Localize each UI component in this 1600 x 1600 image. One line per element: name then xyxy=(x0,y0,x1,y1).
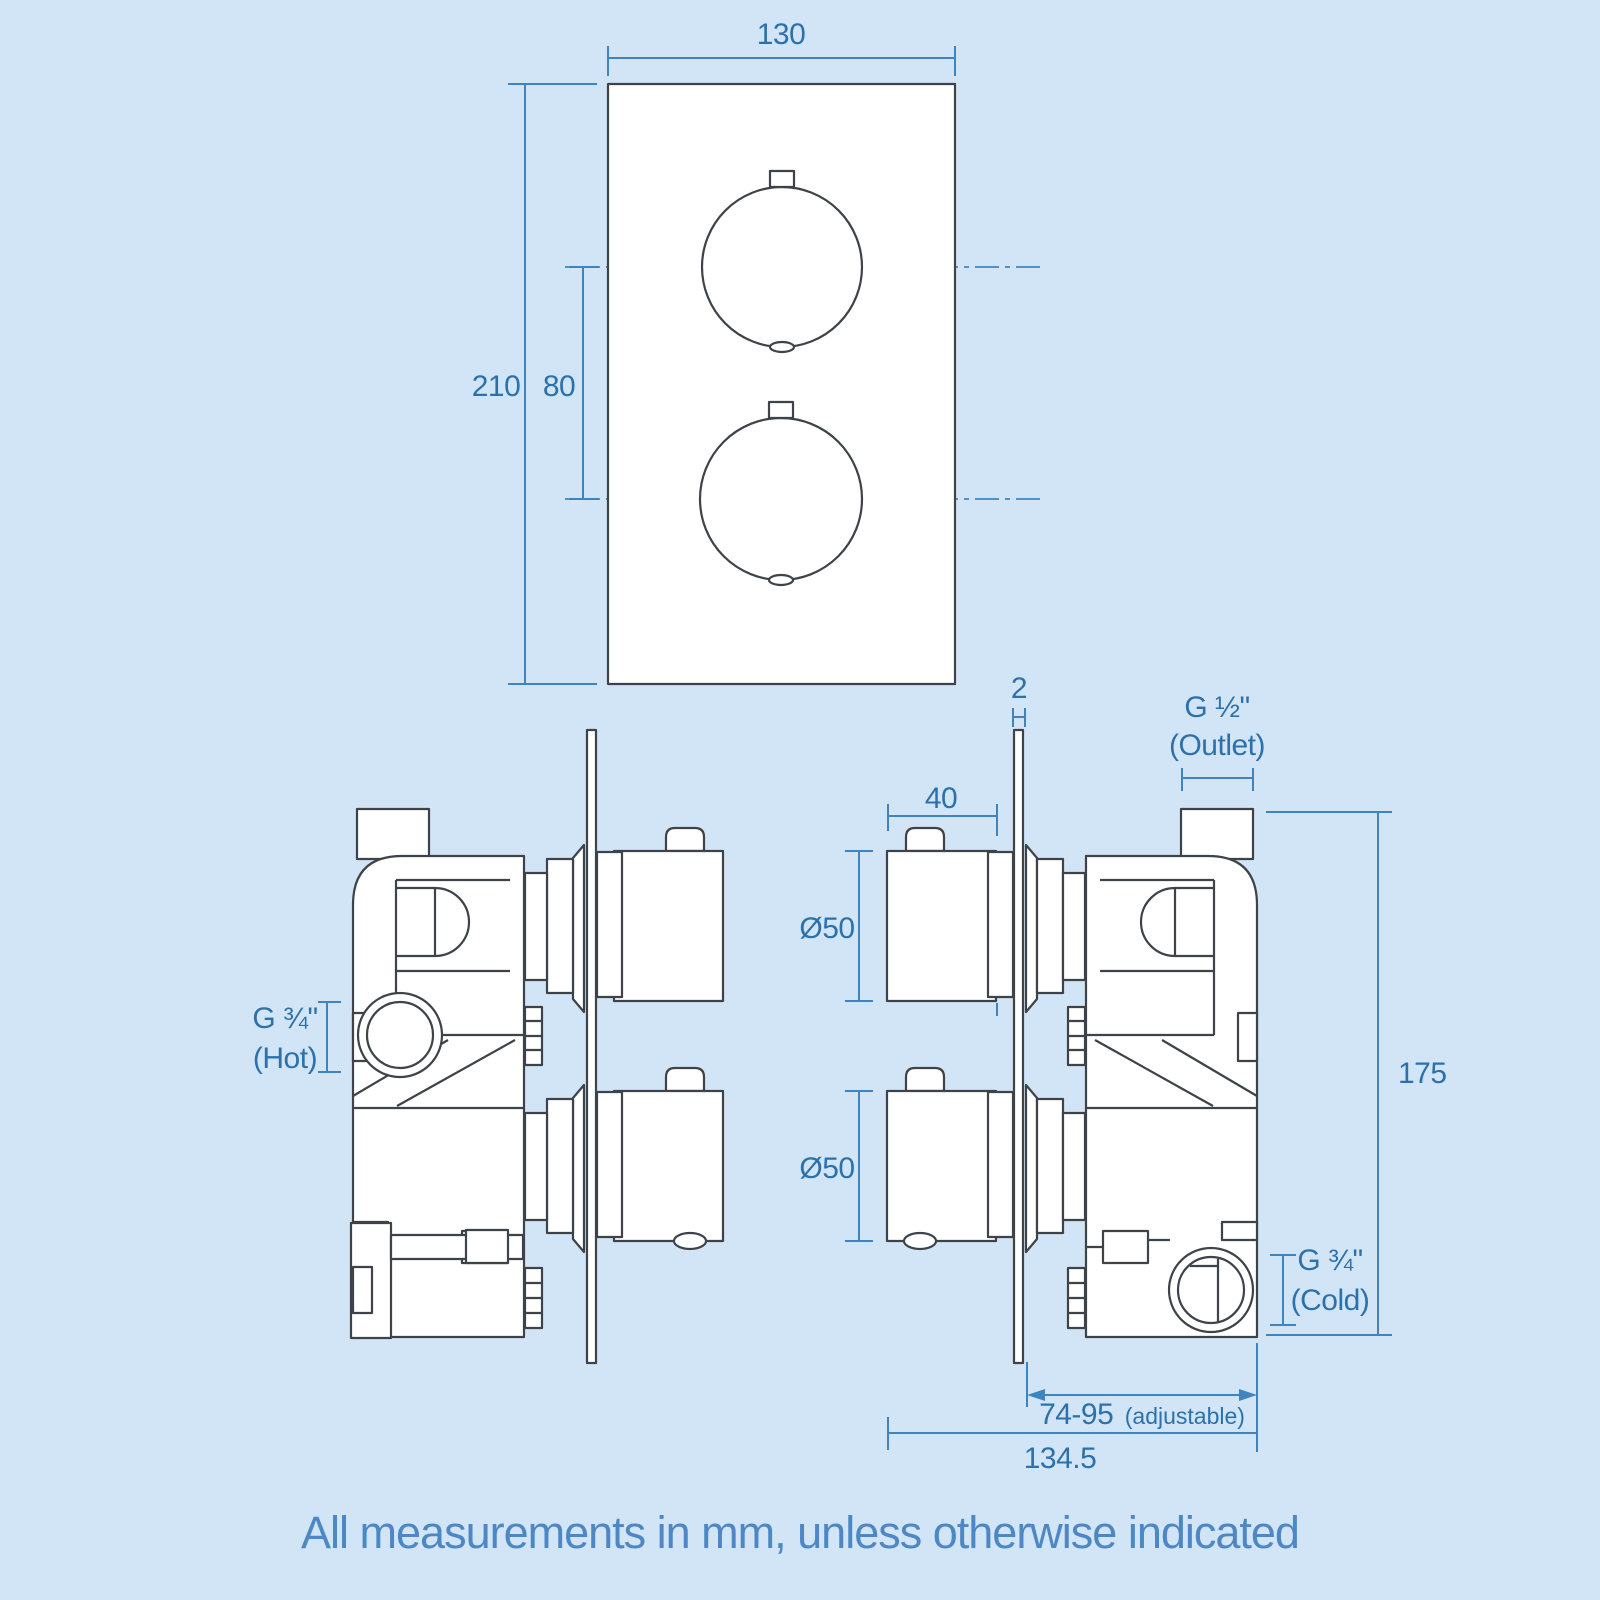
dim-cold-sublabel: (Cold) xyxy=(1291,1284,1370,1317)
dim-adjustable-note: (adjustable) xyxy=(1125,1403,1245,1429)
dim-cold-label: G ¾" xyxy=(1297,1244,1362,1277)
dial-bottom xyxy=(700,418,862,580)
dim-knob-dia-top-label: Ø50 xyxy=(799,912,854,945)
dim-outlet-label: G ½" xyxy=(1184,691,1249,724)
dim-hot-sublabel: (Hot) xyxy=(253,1042,317,1075)
measurement-note: All measurements in mm, unless otherwise… xyxy=(301,1507,1299,1558)
dim-knob-dia-bottom-label: Ø50 xyxy=(799,1152,854,1185)
dim-plate-thickness-label: 2 xyxy=(1011,672,1027,705)
hot-inlet-inner xyxy=(367,1002,433,1068)
dim-dial-spacing-label: 80 xyxy=(543,370,575,403)
dim-adjustable-label: 74-95 (adjustable) xyxy=(1039,1398,1245,1431)
dial-top-notch xyxy=(770,342,794,352)
dim-plate-width-label: 130 xyxy=(757,18,806,51)
dim-total-depth-label: 134.5 xyxy=(1024,1442,1097,1475)
dim-body-height-label: 175 xyxy=(1398,1057,1447,1090)
dial-bottom-notch xyxy=(769,575,793,585)
bracket-slot-left xyxy=(353,1267,372,1313)
dim-plate-height-label: 210 xyxy=(472,370,521,403)
dim-knob-width-label: 40 xyxy=(925,782,957,815)
clamp-block-left xyxy=(466,1230,508,1263)
dim-hot-label: G ¾" xyxy=(252,1002,317,1035)
dial-top-lever xyxy=(770,171,794,187)
hot-inlet xyxy=(358,993,442,1077)
technical-drawing: 130 210 80 G ¾" (Hot) xyxy=(0,0,1600,1600)
dial-bottom-lever xyxy=(769,402,793,418)
diagram-canvas: 130 210 80 G ¾" (Hot) xyxy=(0,0,1600,1600)
dim-outlet-sublabel: (Outlet) xyxy=(1169,729,1265,762)
dim-adjustable-value: 74-95 xyxy=(1039,1398,1113,1431)
dial-top xyxy=(702,187,862,347)
